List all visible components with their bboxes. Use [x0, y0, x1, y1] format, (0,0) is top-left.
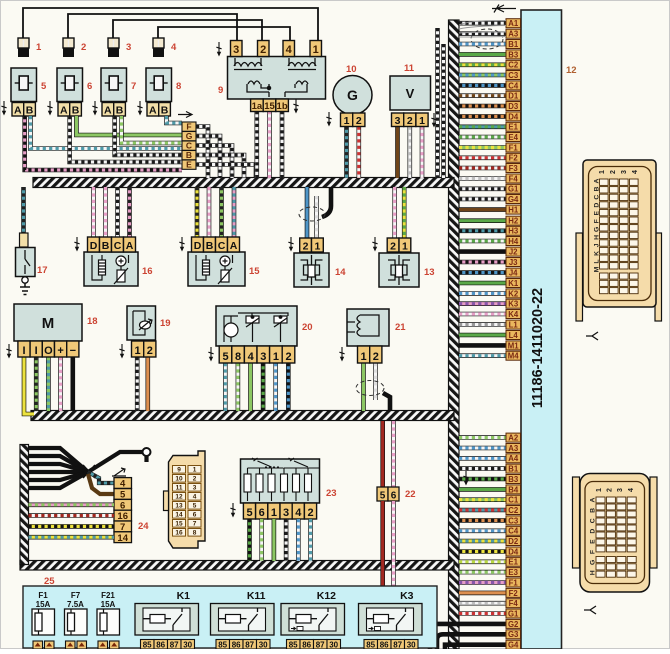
svg-text:G: G	[347, 87, 358, 103]
svg-text:25: 25	[44, 576, 55, 587]
svg-text:86: 86	[302, 641, 311, 650]
svg-text:G: G	[186, 131, 193, 141]
svg-text:G1: G1	[508, 609, 519, 618]
svg-text:H2: H2	[508, 217, 519, 226]
svg-text:2: 2	[81, 42, 86, 53]
svg-text:15: 15	[264, 101, 275, 112]
svg-text:A: A	[14, 105, 22, 117]
svg-text:2: 2	[285, 351, 291, 363]
svg-text:G2: G2	[508, 620, 519, 629]
svg-text:O: O	[44, 345, 53, 357]
svg-text:6: 6	[391, 491, 397, 502]
svg-text:2: 2	[193, 476, 197, 483]
svg-text:H3: H3	[508, 227, 519, 236]
svg-text:B: B	[72, 105, 80, 117]
svg-text:13: 13	[424, 267, 435, 278]
svg-text:A3: A3	[508, 444, 519, 453]
svg-text:12: 12	[566, 65, 577, 76]
svg-text:F1: F1	[38, 591, 48, 600]
svg-text:30: 30	[259, 641, 268, 650]
svg-text:I: I	[22, 345, 25, 357]
svg-text:F1: F1	[509, 143, 519, 152]
svg-text:18: 18	[87, 316, 98, 327]
svg-text:1a: 1a	[252, 101, 263, 112]
svg-text:C: C	[186, 141, 192, 151]
svg-text:87: 87	[170, 641, 179, 650]
svg-text:H1: H1	[508, 206, 519, 215]
svg-text:15: 15	[249, 266, 260, 277]
svg-text:3: 3	[283, 507, 289, 519]
svg-text:3: 3	[617, 488, 624, 492]
svg-text:J2: J2	[509, 248, 518, 257]
svg-text:C: C	[218, 240, 226, 252]
svg-text:7: 7	[193, 521, 197, 528]
svg-text:F4: F4	[509, 599, 519, 608]
svg-text:A: A	[230, 240, 238, 252]
svg-text:85: 85	[218, 641, 227, 650]
svg-text:87: 87	[393, 641, 402, 650]
svg-text:3: 3	[233, 44, 239, 56]
svg-text:19: 19	[160, 318, 171, 329]
svg-text:B: B	[116, 105, 124, 117]
svg-text:1: 1	[314, 241, 320, 253]
svg-text:9: 9	[218, 85, 223, 96]
svg-text:H4: H4	[508, 237, 519, 246]
svg-text:F7: F7	[71, 591, 81, 600]
svg-text:10: 10	[346, 64, 357, 75]
svg-text:D1: D1	[508, 92, 519, 101]
svg-text:15A: 15A	[101, 600, 116, 609]
svg-text:1: 1	[402, 241, 408, 253]
svg-text:M: M	[42, 315, 55, 332]
svg-text:86: 86	[380, 641, 389, 650]
svg-text:13: 13	[175, 503, 183, 510]
svg-text:K11: K11	[247, 590, 266, 602]
svg-text:B3: B3	[508, 50, 519, 59]
svg-text:M4: M4	[508, 352, 519, 361]
svg-text:D: D	[90, 240, 98, 252]
svg-text:85: 85	[143, 641, 152, 650]
svg-text:A: A	[149, 105, 157, 117]
svg-text:15A: 15A	[36, 600, 51, 609]
svg-text:B: B	[161, 105, 169, 117]
svg-text:K1: K1	[177, 590, 191, 602]
svg-text:I: I	[35, 345, 38, 357]
svg-text:K1: K1	[508, 279, 519, 288]
svg-text:2: 2	[307, 507, 313, 519]
svg-text:G4: G4	[508, 195, 519, 204]
svg-text:3: 3	[126, 42, 131, 53]
svg-text:1: 1	[344, 115, 350, 127]
svg-text:6: 6	[87, 81, 92, 92]
svg-text:B: B	[206, 240, 214, 252]
svg-text:5: 5	[222, 351, 228, 363]
svg-text:F1: F1	[509, 578, 519, 587]
svg-text:D: D	[194, 240, 202, 252]
svg-text:E1: E1	[508, 558, 518, 567]
svg-text:D3: D3	[508, 102, 519, 111]
svg-text:A1: A1	[508, 19, 519, 28]
svg-text:A: A	[104, 105, 112, 117]
svg-text:3: 3	[260, 351, 266, 363]
svg-text:85: 85	[289, 641, 298, 650]
svg-text:F: F	[590, 550, 597, 554]
svg-text:1: 1	[313, 44, 319, 56]
svg-text:B: B	[102, 240, 110, 252]
svg-text:11: 11	[404, 63, 415, 74]
svg-text:15: 15	[175, 521, 183, 528]
svg-text:L4: L4	[509, 331, 519, 340]
svg-text:C3: C3	[508, 71, 519, 80]
svg-text:4: 4	[193, 494, 197, 501]
svg-text:E: E	[590, 539, 597, 544]
svg-text:C: C	[590, 518, 597, 523]
svg-text:3: 3	[193, 485, 197, 492]
svg-text:A: A	[126, 240, 134, 252]
svg-text:6: 6	[259, 507, 265, 519]
svg-text:30: 30	[329, 641, 338, 650]
svg-text:B1: B1	[508, 40, 519, 49]
svg-text:F3: F3	[509, 164, 519, 173]
svg-text:C: C	[114, 240, 122, 252]
svg-text:C2: C2	[508, 61, 519, 70]
svg-text:A3: A3	[508, 30, 519, 39]
svg-text:B: B	[186, 150, 192, 160]
svg-text:85: 85	[366, 641, 375, 650]
svg-text:2: 2	[260, 44, 266, 56]
svg-text:86: 86	[156, 641, 165, 650]
svg-text:4: 4	[295, 507, 302, 519]
svg-text:1: 1	[596, 488, 603, 492]
svg-text:2: 2	[407, 115, 413, 127]
svg-text:F2: F2	[509, 589, 519, 598]
svg-text:G3: G3	[508, 630, 519, 639]
svg-text:4: 4	[628, 488, 635, 492]
svg-text:A: A	[590, 497, 597, 502]
svg-text:2: 2	[610, 170, 617, 174]
svg-text:C3: C3	[508, 516, 519, 525]
svg-text:H: H	[590, 570, 597, 575]
svg-text:12: 12	[175, 494, 183, 501]
svg-text:F2: F2	[509, 154, 519, 163]
svg-text:G4: G4	[508, 641, 519, 649]
svg-text:1: 1	[36, 42, 42, 53]
svg-text:4: 4	[632, 170, 639, 174]
svg-text:D: D	[590, 529, 597, 534]
svg-text:3: 3	[621, 170, 628, 174]
svg-text:24: 24	[138, 521, 149, 532]
svg-text:K3: K3	[400, 590, 414, 602]
svg-text:7: 7	[131, 81, 136, 92]
svg-text:E: E	[186, 160, 192, 170]
svg-text:17: 17	[37, 265, 48, 276]
svg-text:21: 21	[395, 322, 406, 333]
svg-text:4: 4	[171, 42, 177, 53]
svg-text:2: 2	[373, 351, 379, 363]
svg-text:+: +	[57, 345, 63, 357]
svg-text:E3: E3	[508, 568, 518, 577]
svg-text:V: V	[406, 86, 415, 101]
svg-text:16: 16	[142, 266, 153, 277]
svg-text:1: 1	[361, 351, 367, 363]
svg-text:J4: J4	[509, 269, 518, 278]
svg-text:14: 14	[335, 267, 346, 278]
svg-text:G: G	[590, 560, 597, 565]
svg-text:4: 4	[248, 351, 255, 363]
svg-text:87: 87	[316, 641, 325, 650]
svg-text:5: 5	[193, 503, 197, 510]
svg-text:J3: J3	[509, 258, 518, 267]
svg-text:10: 10	[175, 476, 183, 483]
svg-text:8: 8	[193, 530, 197, 537]
svg-text:22: 22	[405, 489, 416, 500]
svg-text:C2: C2	[508, 506, 519, 515]
svg-text:87: 87	[245, 641, 254, 650]
svg-text:A: A	[60, 105, 68, 117]
svg-text:86: 86	[232, 641, 241, 650]
svg-text:8: 8	[235, 351, 241, 363]
svg-text:B1: B1	[508, 465, 519, 474]
svg-text:D4: D4	[508, 547, 519, 556]
svg-text:−: −	[70, 345, 76, 357]
svg-text:F21: F21	[101, 591, 115, 600]
svg-text:1: 1	[193, 467, 197, 474]
svg-text:B4: B4	[508, 485, 519, 494]
svg-text:C4: C4	[508, 527, 519, 536]
svg-text:2: 2	[390, 241, 396, 253]
svg-text:9: 9	[177, 467, 181, 474]
svg-text:2: 2	[356, 115, 362, 127]
svg-text:K2: K2	[508, 289, 519, 298]
svg-text:A2: A2	[508, 434, 519, 443]
svg-text:14: 14	[117, 533, 128, 544]
svg-text:16: 16	[175, 530, 183, 537]
svg-text:E4: E4	[508, 133, 518, 142]
svg-text:14: 14	[175, 512, 183, 519]
svg-text:L1: L1	[509, 321, 519, 330]
svg-text:A4: A4	[508, 454, 519, 463]
svg-text:8: 8	[176, 81, 181, 92]
svg-text:E1: E1	[508, 123, 518, 132]
svg-text:F4: F4	[509, 174, 519, 183]
svg-text:K3: K3	[508, 300, 519, 309]
svg-text:1: 1	[599, 170, 606, 174]
svg-text:1: 1	[419, 115, 425, 127]
svg-text:F: F	[186, 122, 191, 132]
svg-text:30: 30	[407, 641, 416, 650]
svg-text:3: 3	[395, 115, 401, 127]
svg-text:D2: D2	[508, 537, 519, 546]
svg-text:4: 4	[286, 44, 293, 56]
svg-text:D4: D4	[508, 112, 519, 121]
svg-text:K12: K12	[317, 590, 336, 602]
svg-text:5: 5	[380, 491, 386, 502]
svg-text:B: B	[26, 105, 34, 117]
svg-text:1: 1	[271, 507, 277, 519]
svg-text:G1: G1	[508, 185, 519, 194]
svg-text:C4: C4	[508, 81, 519, 90]
svg-text:5: 5	[246, 507, 252, 519]
svg-text:5: 5	[41, 81, 47, 92]
svg-text:20: 20	[302, 322, 313, 333]
svg-text:2: 2	[607, 488, 614, 492]
svg-text:C1: C1	[508, 496, 519, 505]
svg-text:K4: K4	[508, 310, 519, 319]
svg-text:B3: B3	[508, 475, 519, 484]
svg-text:2: 2	[303, 241, 309, 253]
svg-text:6: 6	[193, 512, 197, 519]
svg-text:23: 23	[326, 488, 337, 499]
svg-text:2: 2	[147, 345, 153, 357]
svg-text:1: 1	[135, 345, 141, 357]
svg-text:11186-1411020-22: 11186-1411020-22	[530, 288, 546, 408]
svg-text:1b: 1b	[277, 101, 288, 112]
svg-text:M1: M1	[508, 341, 519, 350]
svg-text:1: 1	[273, 351, 279, 363]
svg-text:11: 11	[176, 485, 183, 492]
svg-text:30: 30	[183, 641, 192, 650]
svg-text:7.5A: 7.5A	[67, 600, 84, 609]
svg-text:B: B	[590, 508, 597, 513]
